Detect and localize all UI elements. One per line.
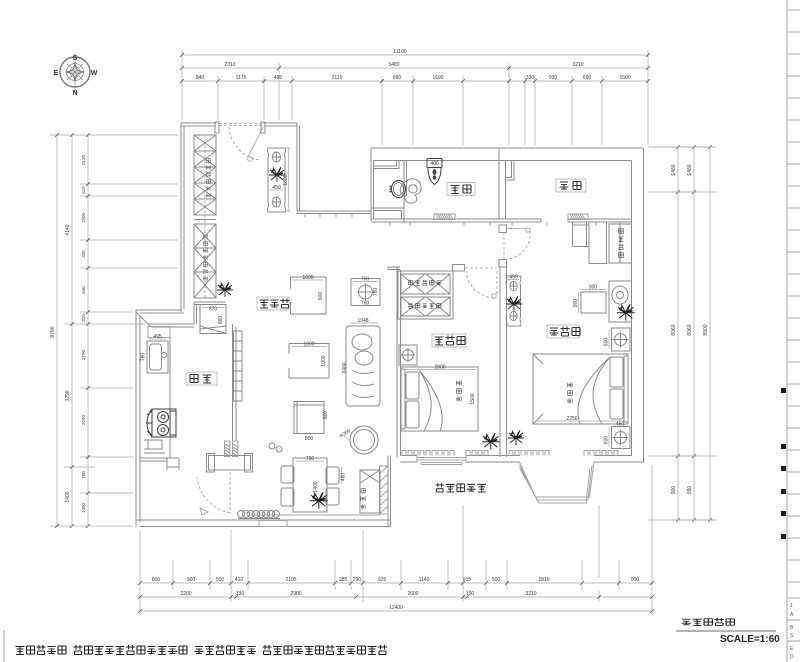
svg-text:515: 515 (81, 186, 86, 194)
svg-text:A: A (790, 612, 794, 618)
svg-text:2600: 2600 (407, 591, 418, 597)
svg-text:1048: 1048 (357, 318, 368, 324)
svg-text:800: 800 (305, 436, 314, 442)
svg-text:2250: 2250 (566, 416, 577, 422)
svg-text:330: 330 (526, 75, 535, 81)
svg-text:900: 900 (573, 299, 579, 308)
svg-text:D: D (790, 654, 794, 660)
svg-text:690: 690 (583, 75, 592, 81)
svg-text:870: 870 (209, 307, 218, 313)
svg-text:1000: 1000 (303, 342, 314, 348)
svg-text:450: 450 (616, 422, 625, 428)
svg-text:900: 900 (671, 486, 677, 495)
svg-text:925: 925 (378, 577, 387, 583)
svg-text:1690: 1690 (432, 75, 443, 81)
svg-text:3210: 3210 (525, 591, 536, 597)
svg-text:B: B (790, 625, 794, 631)
svg-text:E: E (790, 646, 794, 652)
svg-text:290: 290 (353, 577, 362, 583)
svg-text:3290: 3290 (65, 390, 71, 401)
svg-text:1400: 1400 (313, 481, 319, 492)
svg-text:760: 760 (373, 288, 379, 297)
svg-text:780: 780 (141, 353, 147, 362)
svg-text:900: 900 (187, 577, 196, 583)
svg-text:2400: 2400 (342, 362, 348, 373)
svg-text:8900: 8900 (703, 324, 709, 335)
svg-text:2130: 2130 (81, 154, 86, 165)
svg-text:2310: 2310 (224, 62, 235, 68)
svg-text:900: 900 (631, 577, 640, 583)
svg-text:385: 385 (339, 577, 348, 583)
svg-text:100: 100 (466, 591, 475, 597)
svg-text:SCALE=1:60: SCALE=1:60 (720, 634, 780, 645)
svg-text:1140: 1140 (419, 577, 430, 583)
svg-text:2200: 2200 (180, 591, 191, 597)
svg-text:2105: 2105 (285, 577, 296, 583)
svg-text:1600: 1600 (283, 174, 289, 185)
svg-text:12400: 12400 (389, 605, 403, 611)
svg-text:1000: 1000 (321, 355, 327, 366)
svg-text:3110: 3110 (332, 75, 343, 81)
svg-text:400: 400 (430, 161, 439, 167)
svg-text:1400: 1400 (81, 502, 86, 513)
svg-text:3210: 3210 (572, 62, 583, 68)
svg-text:1175: 1175 (236, 75, 247, 81)
svg-text:N: N (72, 90, 77, 97)
svg-text:2000: 2000 (434, 365, 445, 371)
svg-text:E: E (54, 70, 59, 77)
svg-text:11100: 11100 (393, 49, 406, 55)
svg-text:900: 900 (318, 292, 324, 301)
svg-text:4140: 4140 (65, 224, 71, 235)
svg-text:6060: 6060 (671, 324, 677, 335)
svg-text:6060: 6060 (687, 324, 693, 335)
svg-text:790: 790 (306, 456, 315, 462)
svg-text:690: 690 (393, 75, 402, 81)
svg-text:1: 1 (790, 603, 793, 609)
svg-text:S: S (73, 55, 78, 62)
svg-text:480: 480 (341, 473, 347, 482)
svg-text:840: 840 (196, 75, 205, 81)
svg-text:860: 860 (218, 316, 224, 325)
svg-text:800: 800 (323, 411, 329, 420)
svg-text:410: 410 (235, 577, 244, 583)
svg-text:450: 450 (272, 185, 281, 191)
svg-text:310: 310 (81, 314, 86, 322)
svg-text:1810: 1810 (538, 577, 549, 583)
svg-text:8790: 8790 (50, 326, 56, 337)
svg-text:500: 500 (492, 577, 501, 583)
svg-text:900: 900 (589, 285, 598, 291)
svg-text:915: 915 (463, 577, 472, 583)
svg-text:760: 760 (361, 277, 370, 283)
svg-text:450: 450 (509, 275, 518, 281)
svg-text:500: 500 (216, 577, 225, 583)
svg-text:840: 840 (81, 286, 86, 294)
svg-text:1400: 1400 (65, 491, 71, 502)
svg-text:S: S (790, 633, 794, 639)
svg-text:3290: 3290 (81, 414, 86, 425)
svg-text:5480: 5480 (388, 62, 399, 68)
svg-text:335: 335 (81, 250, 86, 258)
svg-text:600: 600 (604, 436, 610, 445)
svg-text:760: 760 (361, 301, 370, 307)
svg-text:W: W (91, 70, 98, 77)
svg-text:130: 130 (236, 591, 245, 597)
svg-text:1500: 1500 (470, 393, 476, 404)
svg-text:2900: 2900 (290, 591, 301, 597)
svg-text:1900: 1900 (81, 212, 86, 223)
svg-text:1480: 1480 (687, 164, 693, 175)
svg-text:950: 950 (687, 486, 693, 495)
svg-text:1600: 1600 (619, 75, 630, 81)
svg-text:1480: 1480 (671, 164, 677, 175)
svg-text:495: 495 (274, 75, 283, 81)
svg-text:495: 495 (153, 334, 162, 340)
svg-text:800: 800 (152, 577, 161, 583)
svg-text:1000: 1000 (302, 275, 313, 281)
svg-text:930: 930 (549, 75, 558, 81)
svg-text:600: 600 (604, 338, 610, 347)
svg-text:2790: 2790 (81, 349, 86, 360)
svg-text:700: 700 (81, 471, 86, 479)
